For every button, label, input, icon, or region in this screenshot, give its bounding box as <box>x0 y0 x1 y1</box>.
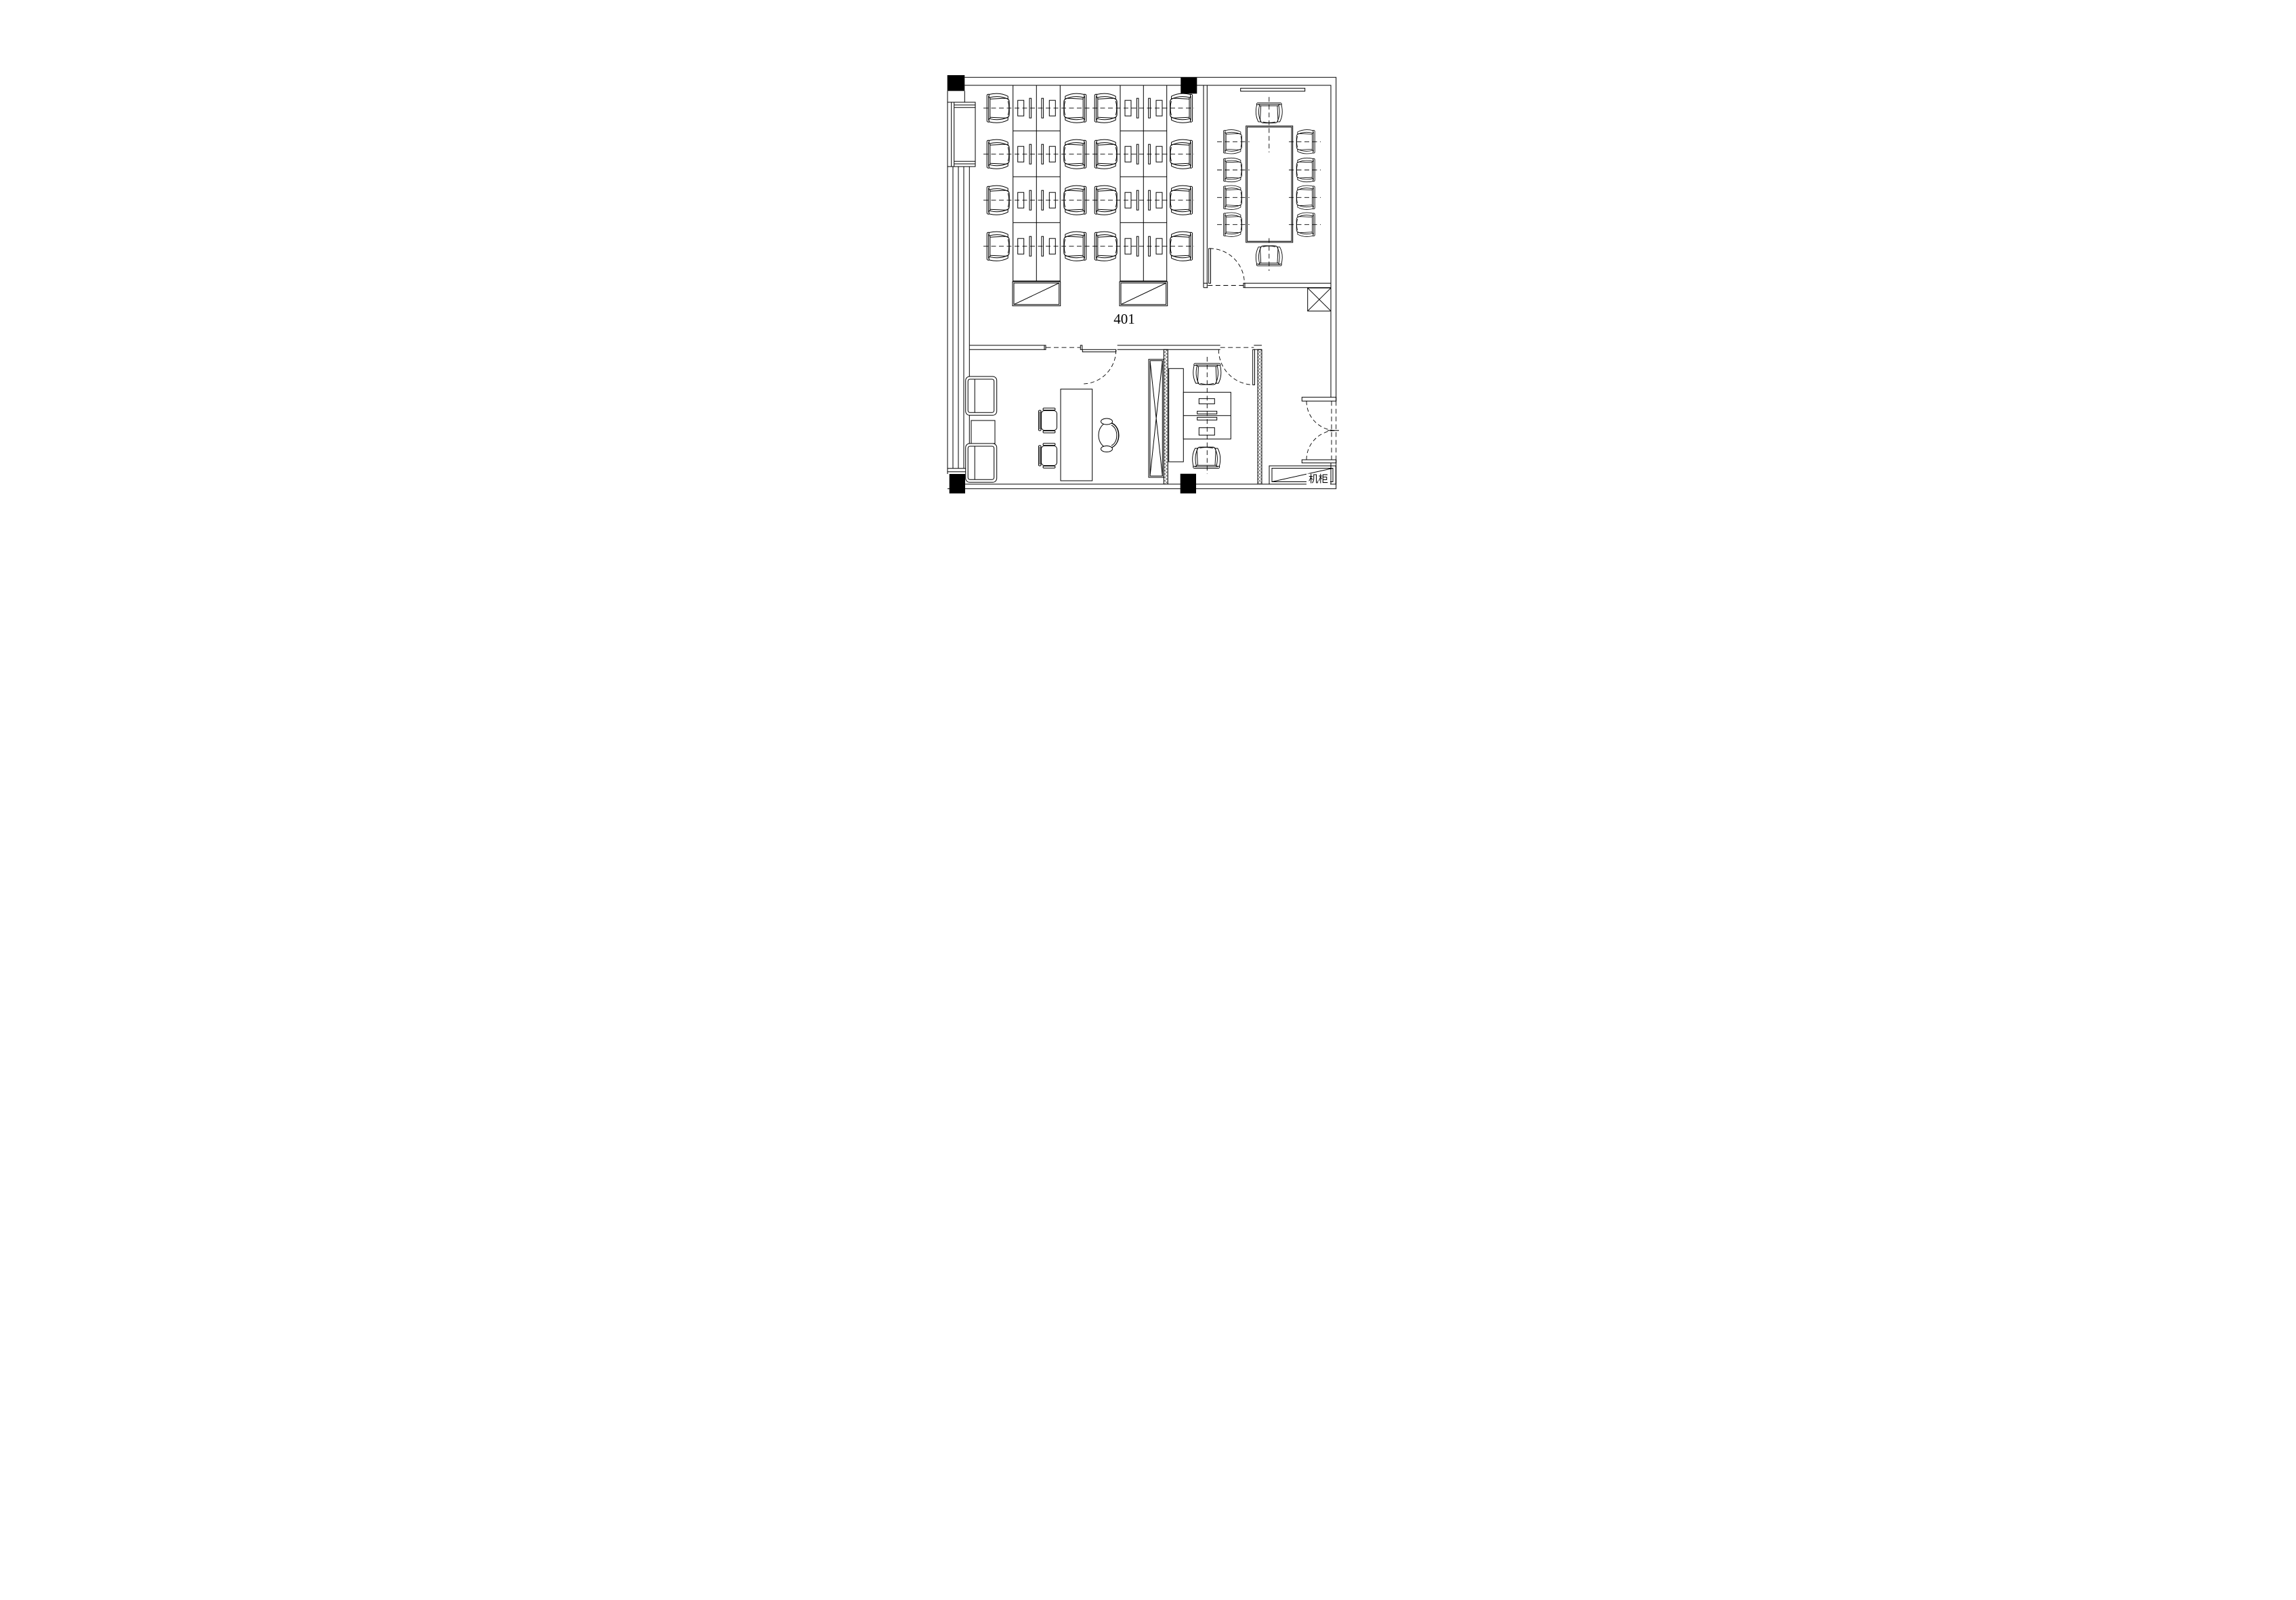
coffee-table <box>971 420 995 444</box>
task-chair <box>1064 139 1086 169</box>
hatched-wall-west <box>1164 349 1168 484</box>
guest-chair <box>1039 408 1057 433</box>
guest-chair <box>1039 444 1057 468</box>
room-number-label: 401 <box>1113 311 1135 327</box>
printer-table <box>1120 282 1168 306</box>
printer-table <box>1013 282 1061 306</box>
manager-desk <box>1061 389 1092 481</box>
workstation-area <box>983 85 1194 306</box>
task-chair <box>1064 232 1086 261</box>
equipment-cabinet-label: 机柜 <box>1309 474 1328 485</box>
middle-office <box>1169 357 1231 474</box>
task-chair <box>987 139 1009 169</box>
middle-office-door-leaf <box>1253 349 1255 385</box>
executive-chair <box>1099 418 1119 452</box>
conference-table <box>1246 126 1293 242</box>
task-chair <box>1094 93 1117 123</box>
task-chair <box>1064 93 1086 123</box>
window-wall <box>948 167 969 472</box>
conference-door-swing <box>1210 248 1244 283</box>
task-chair <box>987 186 1009 215</box>
conference-room <box>1217 97 1321 271</box>
task-chair <box>1094 139 1117 169</box>
desk-return-panel <box>1169 368 1184 462</box>
hatched-wall-east <box>1258 349 1262 484</box>
column <box>948 75 965 91</box>
column <box>1181 77 1197 93</box>
desk-strip <box>1013 85 1061 306</box>
entrance-double-door <box>1302 397 1339 463</box>
task-chair <box>987 232 1009 261</box>
office-door-leaf <box>1082 349 1115 351</box>
conference-window-sill <box>1241 88 1305 91</box>
task-chair <box>1064 186 1086 215</box>
manager-office <box>966 360 1164 483</box>
floor-plan-drawing: 机柜 401 <box>765 0 1531 534</box>
task-chair <box>1094 186 1117 215</box>
floor-plan-page: 机柜 401 <box>765 0 1531 534</box>
sofa <box>966 444 997 482</box>
window-bay <box>948 91 975 167</box>
task-chair <box>1094 232 1117 261</box>
shaft-symbol <box>1308 288 1331 311</box>
task-chair <box>987 93 1009 123</box>
conference-door-leaf <box>1209 248 1211 283</box>
office-chair <box>1193 447 1220 468</box>
equipment-cabinet: 机柜 <box>1269 466 1336 485</box>
column <box>950 474 965 494</box>
wardrobe-cabinet <box>1149 360 1164 477</box>
office-door-swing <box>1082 350 1116 384</box>
desk-strip <box>1120 85 1168 306</box>
column <box>1181 474 1196 494</box>
sofa <box>966 376 997 415</box>
middle-office-door-swing <box>1218 349 1254 385</box>
